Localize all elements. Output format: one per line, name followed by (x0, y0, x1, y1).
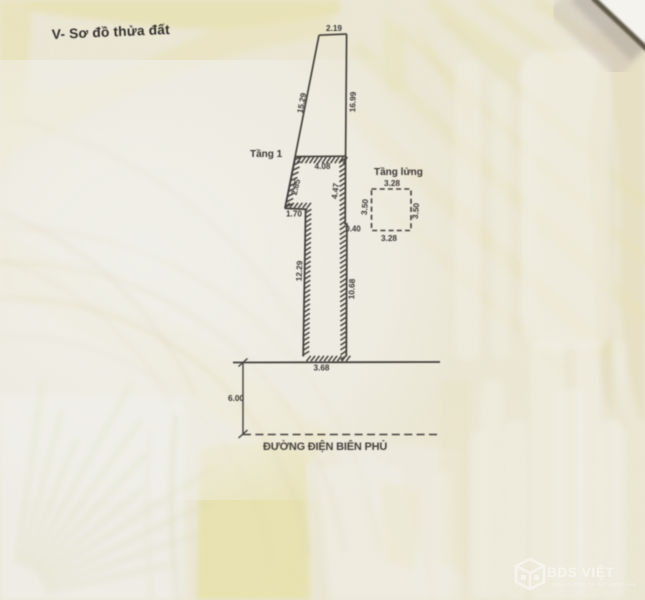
svg-text:12.29: 12.29 (295, 260, 305, 281)
svg-text:KÊNH THÔNG TIN BẤT ĐỘNG SẢN: KÊNH THÔNG TIN BẤT ĐỘNG SẢN (552, 580, 636, 587)
svg-text:3.28: 3.28 (384, 179, 400, 188)
svg-text:3.50: 3.50 (411, 202, 421, 219)
svg-text:3.68: 3.68 (314, 364, 330, 373)
svg-text:ĐƯỜNG ĐIỆN BIÊN PHỦ: ĐƯỜNG ĐIỆN BIÊN PHỦ (263, 440, 387, 453)
svg-text:3.50: 3.50 (360, 198, 370, 215)
svg-text:16.99: 16.99 (348, 91, 358, 112)
svg-text:Tầng lửng: Tầng lửng (374, 166, 423, 178)
svg-text:2.19: 2.19 (326, 24, 342, 33)
svg-text:BDS VIỆT: BDS VIỆT (547, 565, 614, 580)
svg-text:3.28: 3.28 (381, 234, 397, 243)
svg-text:Tầng 1: Tầng 1 (250, 148, 283, 160)
svg-text:10.68: 10.68 (347, 278, 357, 299)
svg-text:0.40: 0.40 (346, 225, 362, 234)
svg-text:1.70: 1.70 (286, 210, 302, 219)
svg-text:6.00: 6.00 (228, 394, 244, 403)
